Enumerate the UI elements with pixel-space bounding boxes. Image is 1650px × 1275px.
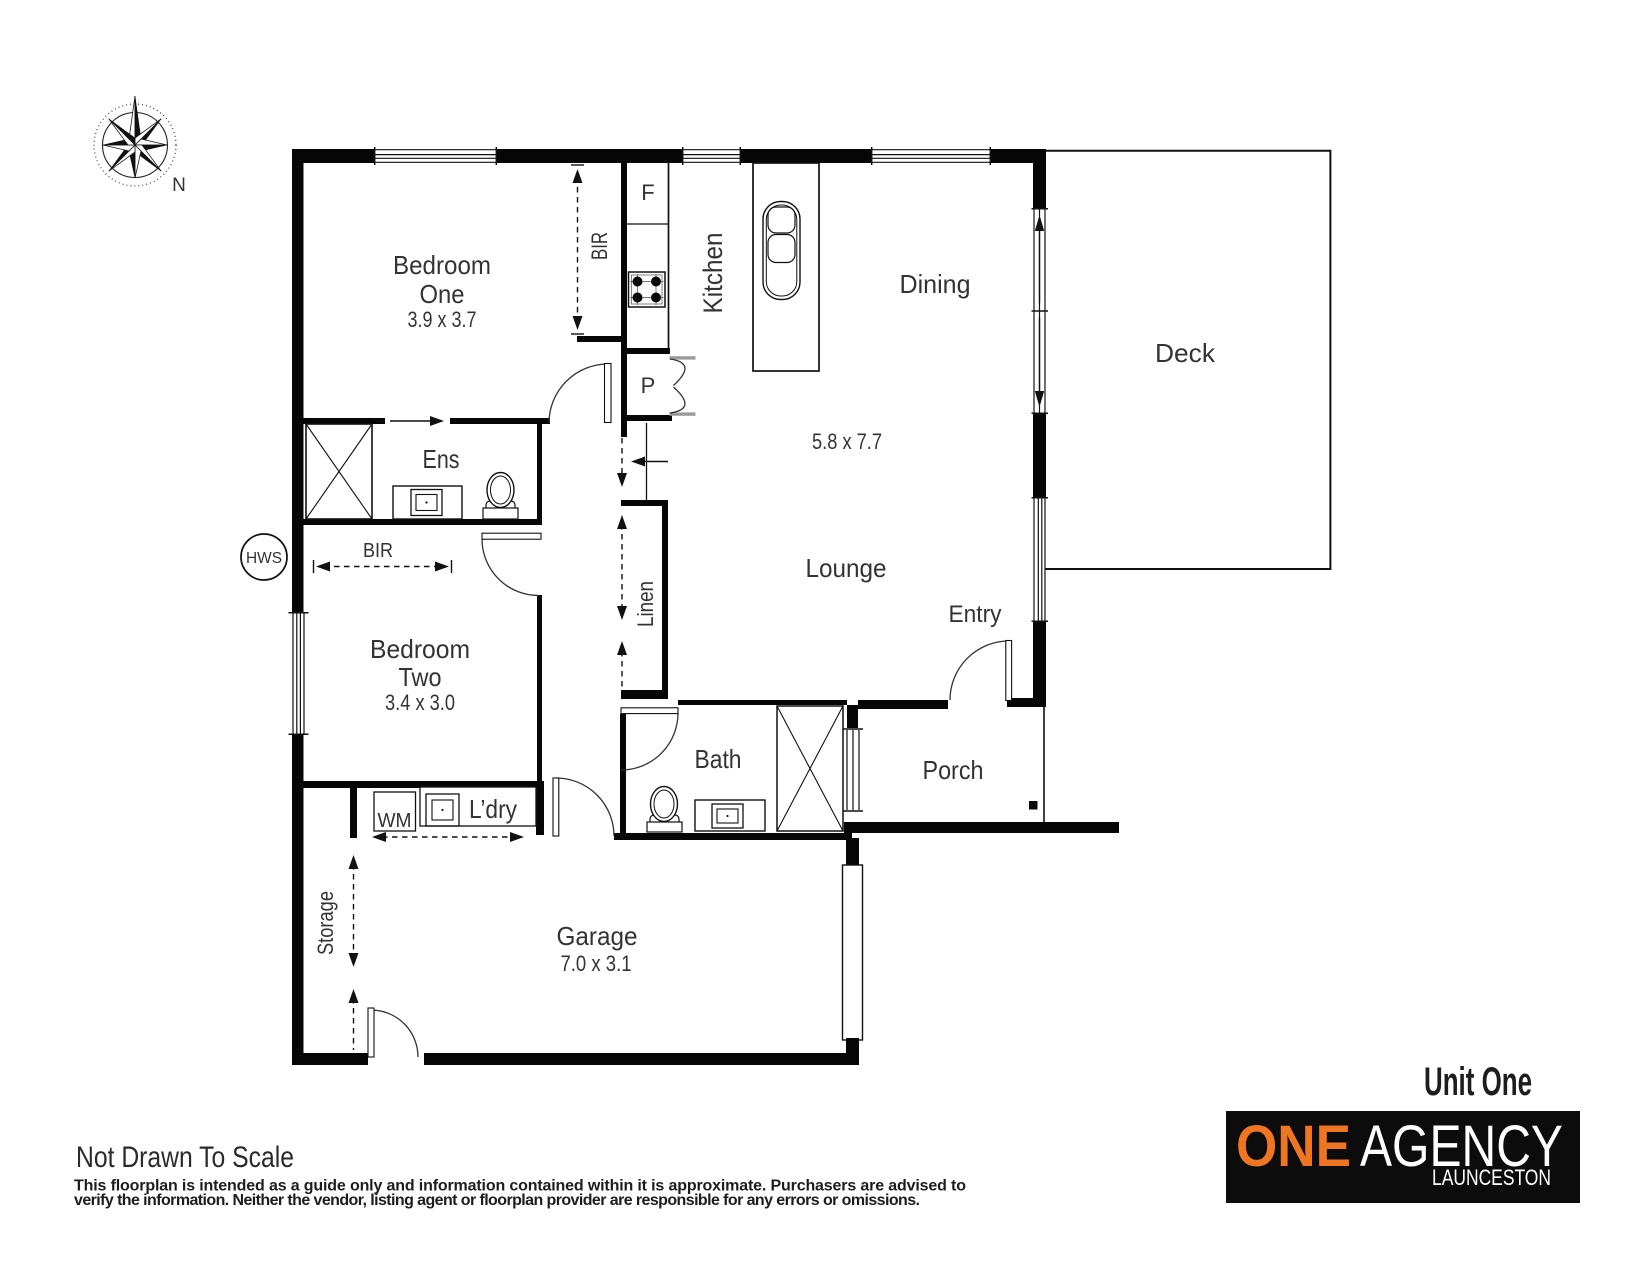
- svg-text:Not Drawn To Scale: Not Drawn To Scale: [76, 1141, 294, 1174]
- svg-text:HWS: HWS: [246, 550, 282, 567]
- svg-text:Bedroom: Bedroom: [393, 250, 491, 280]
- svg-text:P: P: [641, 373, 656, 398]
- svg-text:BIR: BIR: [363, 540, 393, 562]
- svg-text:Ens: Ens: [423, 444, 460, 474]
- svg-text:Storage: Storage: [313, 891, 338, 955]
- svg-text:Deck: Deck: [1155, 338, 1216, 368]
- svg-text:Two: Two: [399, 662, 442, 692]
- svg-text:5.8 x 7.7: 5.8 x 7.7: [812, 429, 882, 454]
- svg-text:ONE: ONE: [1236, 1114, 1351, 1179]
- svg-text:3.9 x 3.7: 3.9 x 3.7: [408, 307, 477, 332]
- svg-text:Kitchen: Kitchen: [698, 233, 728, 314]
- svg-text:verify the information. Neithe: verify the information. Neither the vend…: [74, 1192, 920, 1209]
- svg-text:Bedroom: Bedroom: [370, 634, 470, 664]
- svg-text:Dining: Dining: [900, 269, 971, 299]
- svg-text:Unit One: Unit One: [1424, 1060, 1532, 1104]
- svg-text:F: F: [641, 180, 654, 205]
- svg-text:3.4 x 3.0: 3.4 x 3.0: [385, 690, 455, 715]
- svg-text:BIR: BIR: [587, 232, 612, 260]
- svg-text:N: N: [172, 175, 186, 196]
- svg-text:One: One: [420, 279, 465, 309]
- svg-text:WM: WM: [378, 810, 412, 832]
- svg-text:Garage: Garage: [557, 921, 638, 951]
- svg-text:7.0 x 3.1: 7.0 x 3.1: [561, 951, 632, 976]
- svg-text:Porch: Porch: [923, 755, 984, 785]
- svg-text:Linen: Linen: [633, 581, 658, 627]
- svg-text:Bath: Bath: [695, 744, 742, 774]
- svg-text:L’dry: L’dry: [469, 794, 517, 824]
- svg-text:Entry: Entry: [949, 601, 1002, 628]
- svg-text:Lounge: Lounge: [806, 553, 887, 583]
- svg-text:LAUNCESTON: LAUNCESTON: [1432, 1165, 1551, 1190]
